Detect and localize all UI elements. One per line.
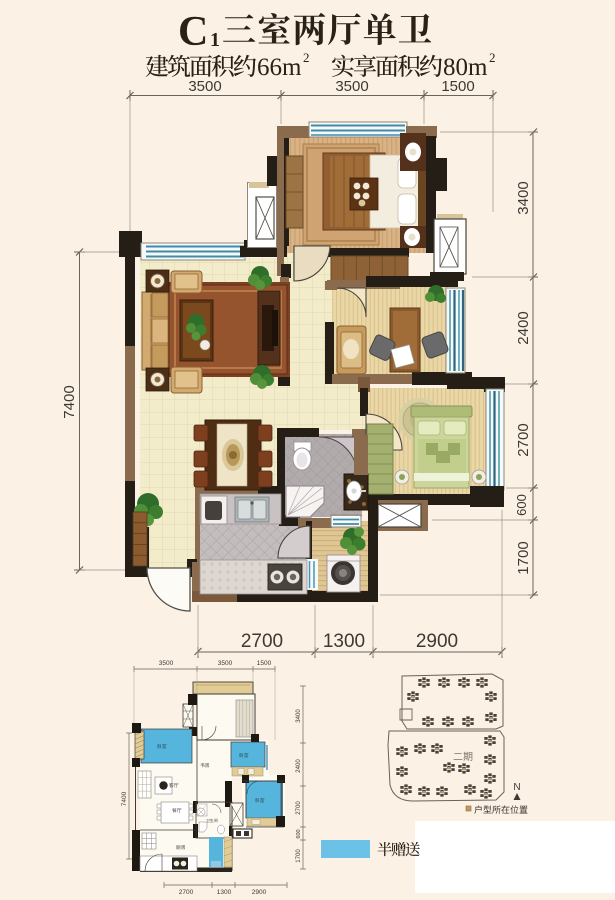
svg-text:7400: 7400 bbox=[121, 791, 128, 806]
svg-text:3400: 3400 bbox=[296, 709, 302, 723]
svg-text:N: N bbox=[513, 782, 520, 793]
svg-text:2700: 2700 bbox=[241, 631, 283, 652]
svg-text:3500: 3500 bbox=[218, 660, 233, 667]
svg-text:600: 600 bbox=[296, 829, 302, 838]
svg-text:2400: 2400 bbox=[296, 759, 302, 773]
svg-text:2400: 2400 bbox=[515, 311, 532, 344]
svg-text:3500: 3500 bbox=[335, 78, 368, 95]
svg-text:1300: 1300 bbox=[323, 631, 365, 652]
svg-text:3500: 3500 bbox=[188, 78, 221, 95]
svg-text:7400: 7400 bbox=[61, 385, 78, 418]
svg-text:C: C bbox=[178, 9, 208, 55]
svg-text:1500: 1500 bbox=[441, 78, 474, 95]
svg-text:2: 2 bbox=[303, 50, 310, 65]
svg-text:3500: 3500 bbox=[159, 660, 174, 667]
svg-text:1500: 1500 bbox=[257, 660, 272, 667]
svg-text:2900: 2900 bbox=[252, 889, 267, 896]
svg-text:1700: 1700 bbox=[296, 849, 302, 863]
svg-text:66m: 66m bbox=[257, 54, 302, 81]
svg-text:2700: 2700 bbox=[515, 423, 532, 456]
svg-text:2: 2 bbox=[489, 50, 496, 65]
svg-text:1700: 1700 bbox=[515, 541, 532, 574]
svg-text:2900: 2900 bbox=[416, 631, 458, 652]
svg-text:2700: 2700 bbox=[296, 801, 302, 815]
svg-text:80m: 80m bbox=[443, 54, 488, 81]
svg-text:1300: 1300 bbox=[217, 889, 232, 896]
svg-text:2700: 2700 bbox=[179, 889, 194, 896]
svg-text:600: 600 bbox=[514, 494, 529, 516]
svg-text:1: 1 bbox=[210, 29, 220, 51]
svg-text:3400: 3400 bbox=[515, 181, 532, 214]
